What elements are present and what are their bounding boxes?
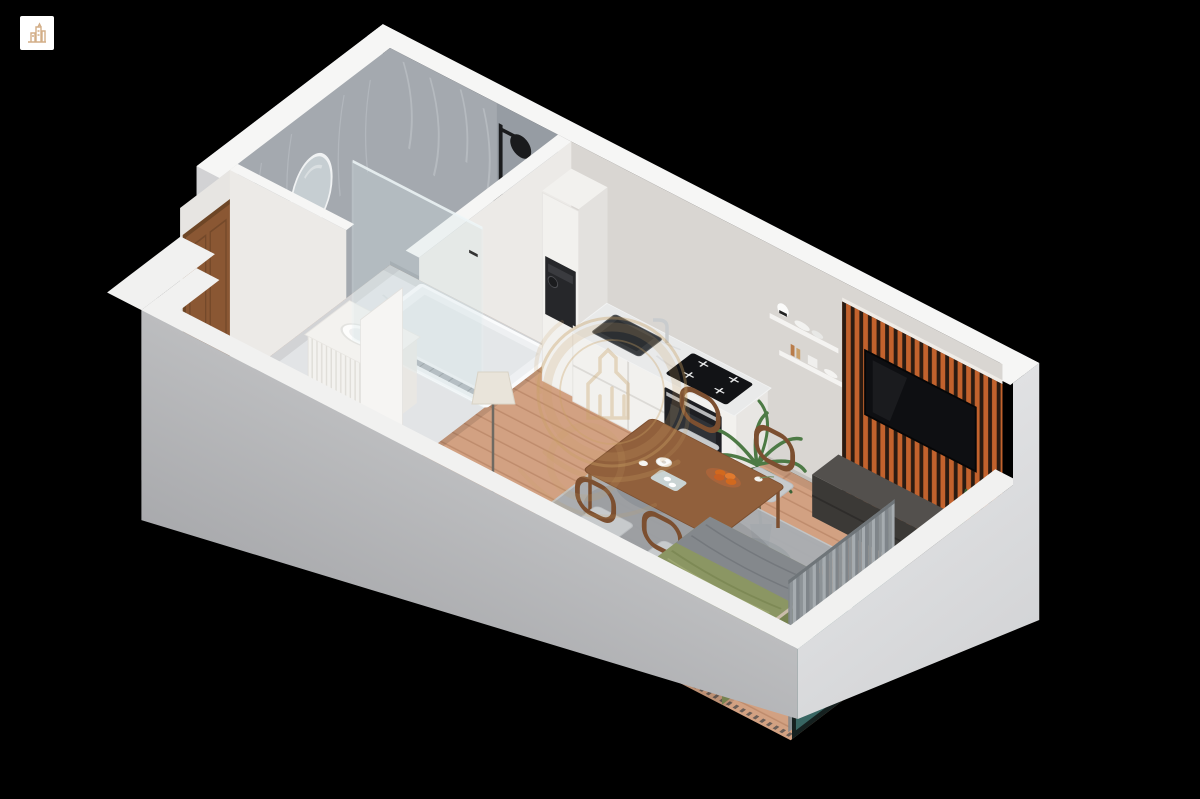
floorplan-render <box>0 0 1200 799</box>
logo-tile <box>20 16 54 50</box>
lamp-shade <box>472 372 515 404</box>
book-spines <box>791 344 795 357</box>
corner-logo <box>20 16 54 50</box>
render-canvas <box>0 0 1200 799</box>
